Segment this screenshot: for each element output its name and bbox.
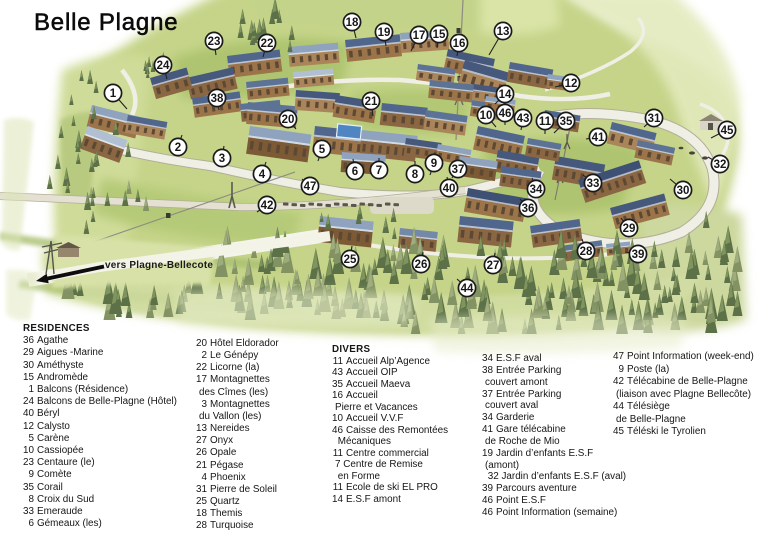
svg-text:15: 15	[433, 29, 446, 41]
svg-text:45: 45	[721, 125, 734, 137]
svg-text:37: 37	[452, 164, 465, 176]
svg-text:17: 17	[413, 30, 426, 42]
svg-text:19: 19	[378, 27, 391, 39]
svg-text:35: 35	[560, 116, 573, 128]
svg-text:31: 31	[648, 113, 661, 125]
svg-text:38: 38	[211, 93, 224, 105]
svg-text:20: 20	[282, 114, 295, 126]
svg-text:9: 9	[431, 158, 437, 170]
svg-text:42: 42	[261, 200, 274, 212]
svg-text:39: 39	[632, 249, 645, 261]
svg-text:46: 46	[499, 108, 512, 120]
svg-text:44: 44	[461, 283, 474, 295]
svg-text:10: 10	[480, 110, 493, 122]
svg-text:27: 27	[487, 260, 500, 272]
svg-text:28: 28	[580, 246, 593, 258]
svg-text:11: 11	[539, 116, 552, 128]
svg-text:43: 43	[517, 113, 530, 125]
svg-text:25: 25	[344, 254, 357, 266]
svg-text:12: 12	[565, 78, 578, 90]
svg-text:2: 2	[175, 142, 181, 154]
svg-text:3: 3	[219, 153, 225, 165]
svg-text:1: 1	[110, 88, 117, 100]
svg-text:36: 36	[522, 203, 535, 215]
svg-text:41: 41	[592, 132, 605, 144]
svg-text:32: 32	[714, 159, 727, 171]
svg-text:5: 5	[319, 144, 326, 156]
svg-text:13: 13	[497, 26, 510, 38]
svg-text:18: 18	[346, 17, 359, 29]
svg-text:6: 6	[352, 166, 358, 178]
svg-text:8: 8	[412, 169, 419, 181]
svg-text:16: 16	[453, 38, 466, 50]
svg-text:4: 4	[259, 169, 266, 181]
svg-text:40: 40	[443, 183, 456, 195]
svg-text:23: 23	[208, 36, 221, 48]
svg-text:24: 24	[157, 60, 170, 72]
svg-text:7: 7	[376, 165, 382, 177]
svg-text:30: 30	[677, 185, 690, 197]
svg-text:29: 29	[623, 223, 636, 235]
svg-text:14: 14	[499, 89, 512, 101]
svg-text:33: 33	[587, 178, 600, 190]
svg-text:26: 26	[415, 259, 428, 271]
svg-text:21: 21	[365, 96, 378, 108]
svg-text:47: 47	[304, 181, 317, 193]
svg-text:34: 34	[530, 184, 543, 196]
svg-text:22: 22	[261, 38, 274, 50]
